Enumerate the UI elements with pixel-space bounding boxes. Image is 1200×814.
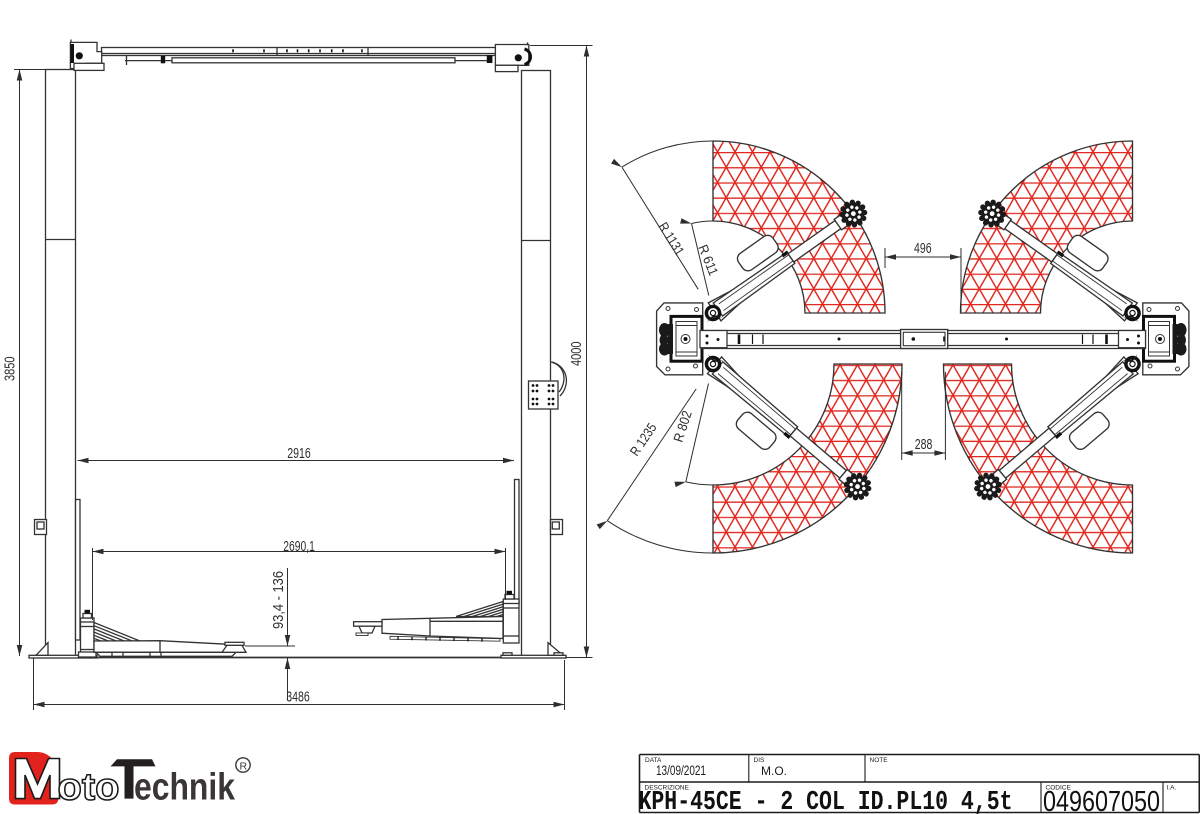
svg-text:M.O.: M.O. — [761, 764, 787, 778]
svg-text:DIS: DIS — [754, 757, 766, 764]
svg-text:R: R — [240, 761, 248, 773]
svg-text:3850: 3850 — [3, 357, 19, 382]
svg-text:2916: 2916 — [287, 446, 311, 462]
svg-text:288: 288 — [915, 437, 933, 453]
svg-text:oto: oto — [58, 767, 120, 809]
svg-text:93,4 - 136: 93,4 - 136 — [271, 571, 287, 629]
svg-text:KPH-45CE - 2 COL ID.PL10 4,5t: KPH-45CE - 2 COL ID.PL10 4,5t — [639, 788, 1013, 814]
svg-text:echnik: echnik — [134, 767, 236, 809]
svg-text:NOTE: NOTE — [870, 757, 889, 764]
svg-text:4000: 4000 — [569, 342, 585, 367]
svg-text:13/09/2021: 13/09/2021 — [656, 763, 706, 778]
svg-text:2690,1: 2690,1 — [283, 539, 315, 555]
svg-text:3486: 3486 — [286, 690, 310, 706]
svg-text:496: 496 — [914, 241, 932, 257]
svg-text:049607050: 049607050 — [1043, 786, 1160, 814]
svg-text:I.A.: I.A. — [1167, 785, 1177, 792]
